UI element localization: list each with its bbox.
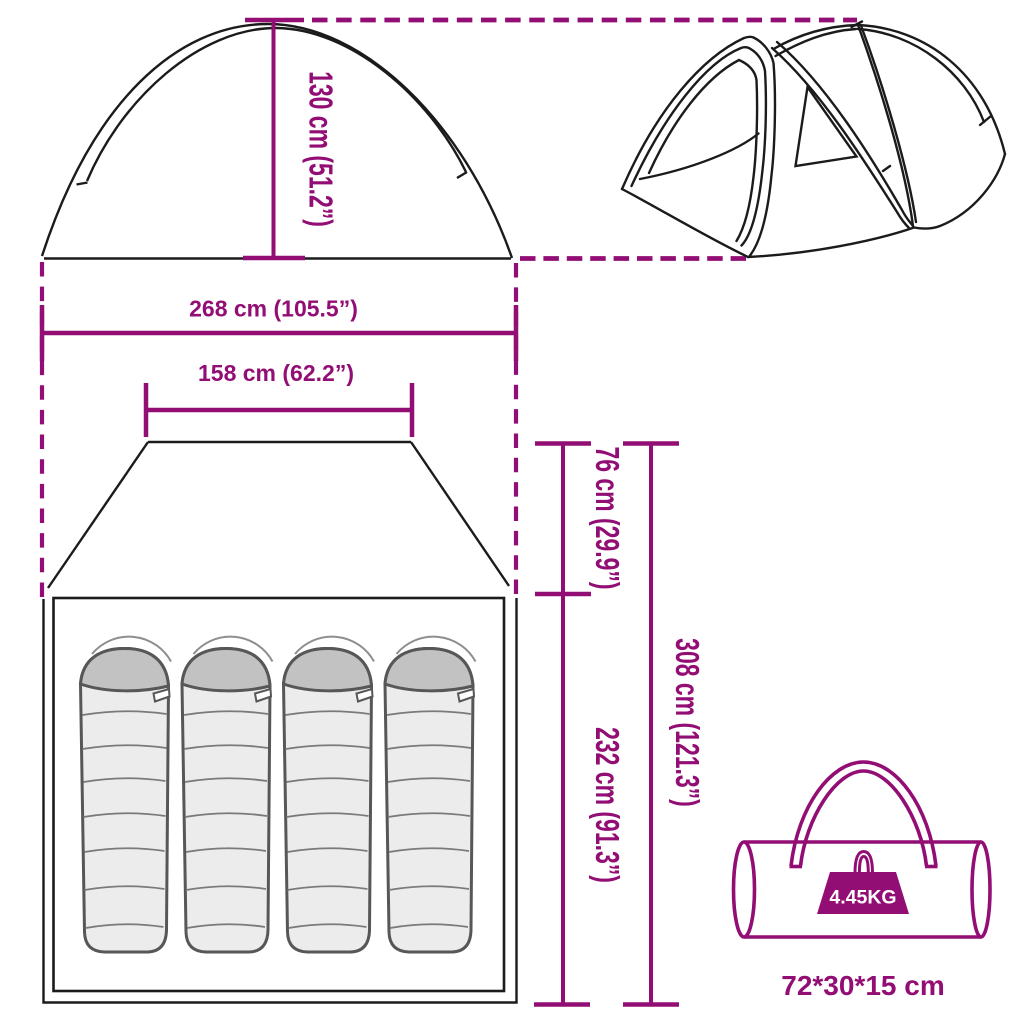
svg-text:232 cm (91.3”): 232 cm (91.3”) [588,727,625,883]
svg-text:130 cm (51.2”): 130 cm (51.2”) [301,71,338,227]
svg-text:4.45KG: 4.45KG [829,887,896,909]
svg-text:72*30*15 cm: 72*30*15 cm [781,970,944,1001]
svg-text:76 cm (29.9”): 76 cm (29.9”) [588,446,625,589]
svg-text:268 cm (105.5”): 268 cm (105.5”) [189,296,358,322]
svg-text:158 cm (62.2”): 158 cm (62.2”) [198,360,354,386]
svg-text:308 cm (121.3”): 308 cm (121.3”) [668,638,705,807]
